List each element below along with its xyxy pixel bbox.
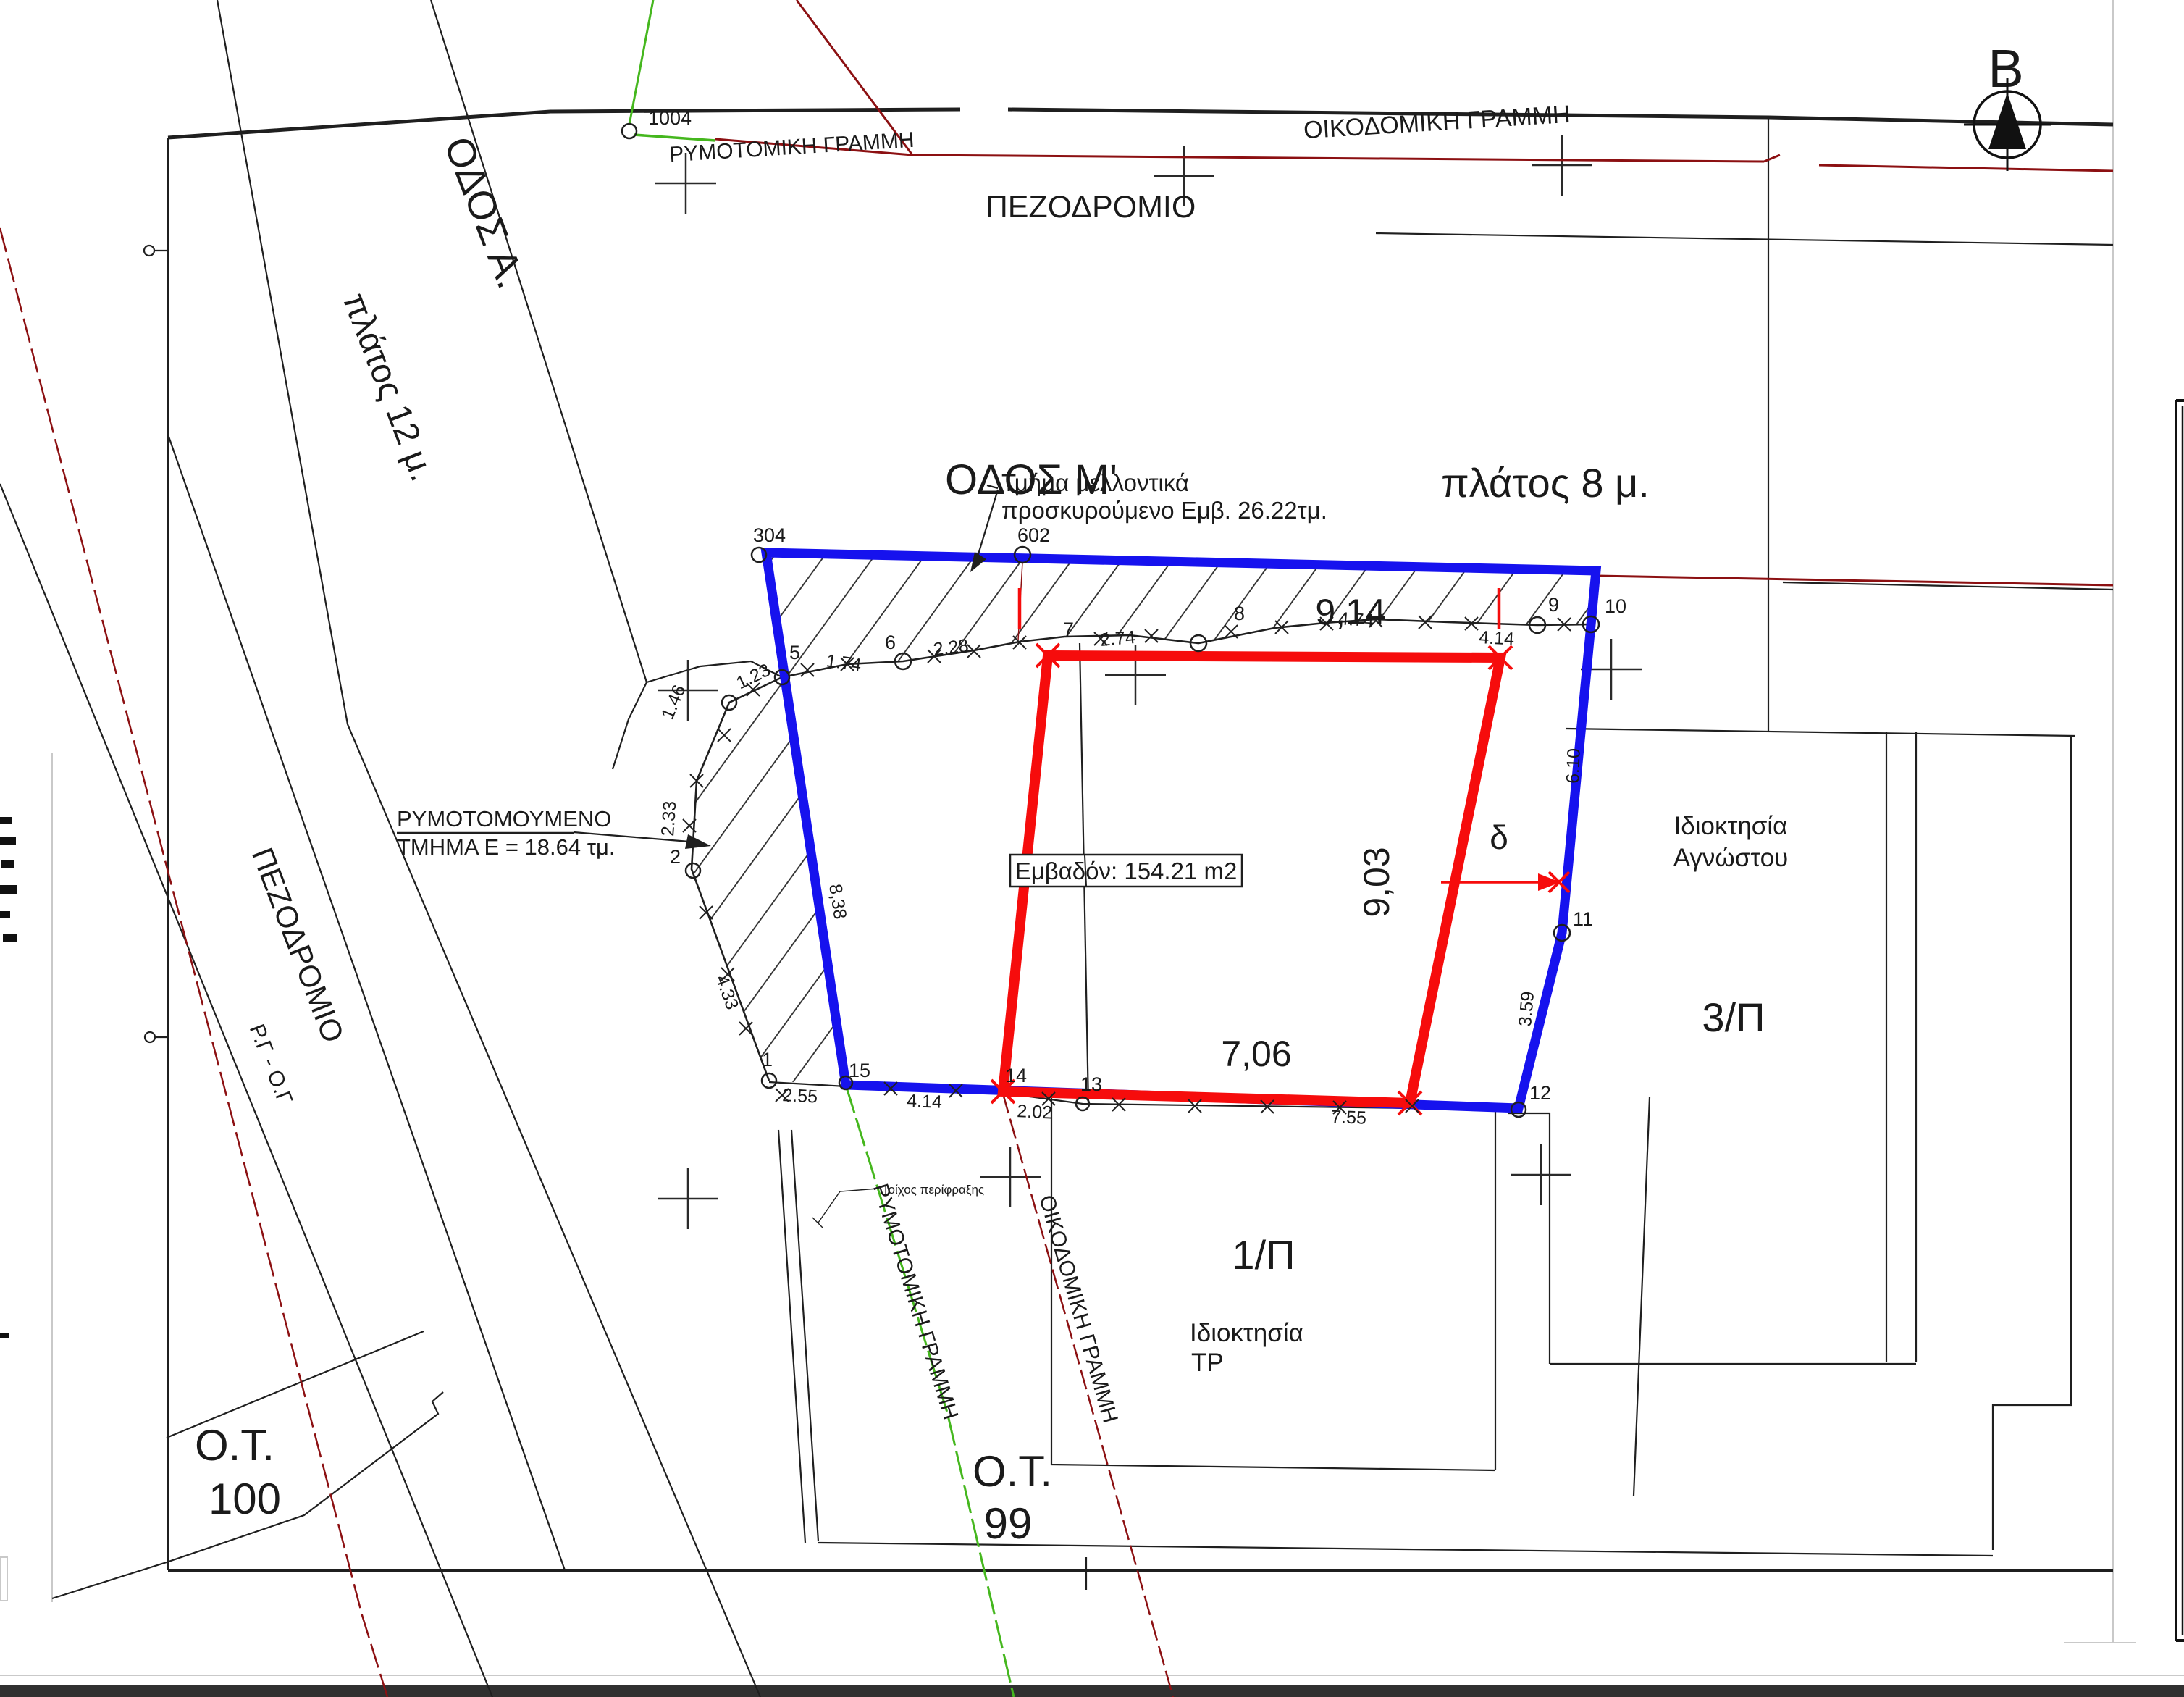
delta-dim-arrow	[1538, 873, 1561, 891]
rymotomiki-line-top-vertical	[629, 0, 653, 125]
owner-1p-line1: Ιδιοκτησία	[1190, 1319, 1303, 1347]
owner-3p-line1: Ιδιοκτησία	[1674, 812, 1788, 840]
pt-10: 10	[1605, 595, 1626, 617]
pt-602: 602	[1017, 524, 1050, 546]
meas-174: 1.74	[825, 650, 862, 676]
topographic-plan-page: { "labels": { "north": "Β", "odos_m": "Ο…	[0, 0, 2184, 1697]
pt-2: 2	[670, 846, 681, 868]
meas-474: 4.74	[1338, 608, 1375, 631]
street-a-label: ΟΔΟΣ Α.	[436, 130, 534, 294]
rymot-note-2: ΤΜΗΜΑ Ε = 18.64 τμ.	[397, 834, 615, 860]
pt-14: 14	[1005, 1065, 1027, 1086]
pt-8: 8	[1234, 603, 1245, 624]
adjacent-sheet-edge	[2176, 400, 2184, 1641]
owner-3p-line2: Αγνώστου	[1673, 844, 1789, 872]
street-m-width: πλάτος 8 μ.	[1441, 460, 1650, 506]
ot100-label-2: 100	[209, 1475, 281, 1523]
street-labels: ΟΔΟΣ Μ' πλάτος 8 μ. ΠΕΖΟΔΡΟΜΙΟ ΟΔΟΣ Α. π…	[245, 101, 1650, 1426]
meas-146: 1.46	[658, 682, 690, 723]
sidewalk-top-label: ΠΕΖΟΔΡΟΜΙΟ	[986, 190, 1196, 225]
pt-6: 6	[885, 632, 896, 653]
pt-1004: 1004	[648, 107, 692, 129]
pt-304: 304	[753, 524, 786, 546]
north-label: Β	[1988, 38, 2023, 99]
rymot-note-1: ΡΥΜΟΤΟΜΟΥΜΕΝΟ	[397, 806, 611, 831]
parcel-3p-label: 3/Π	[1702, 994, 1765, 1040]
dim-706: 7,06	[1221, 1034, 1291, 1074]
rymotomiki-bottom-label: ΡΥΜΟΤΟΜΙΚΗ ΓΡΑΜΜΗ	[868, 1181, 963, 1422]
meas-274: 2.74	[1099, 627, 1136, 650]
meas-755: 7.55	[1331, 1107, 1367, 1128]
ot100-label-1: Ο.Τ.	[195, 1421, 274, 1470]
meas-233: 2.33	[658, 800, 680, 837]
pt-5: 5	[789, 642, 800, 663]
ot99-label-1: Ο.Τ.	[973, 1447, 1052, 1496]
meas-202: 2.02	[1017, 1101, 1053, 1123]
meas-610: 6.10	[1563, 748, 1584, 784]
left-edge-marks	[0, 817, 17, 1338]
dim-delta: δ	[1490, 818, 1508, 856]
east-block-outline	[1993, 736, 2071, 1550]
regulation-lines	[0, 0, 2113, 1697]
parcel-division-12	[1508, 1113, 1916, 1364]
page-artifacts	[0, 0, 2184, 1697]
rymotomiki-top-label: ΡΥΜΟΤΟΜΙΚΗ ΓΡΑΜΜΗ	[668, 128, 915, 167]
pt-13: 13	[1080, 1073, 1102, 1095]
annex-note-1: Τμήμα μελλοντικά	[1001, 469, 1189, 496]
oikodomiki-bottom-label: ΟΙΚΟΔΟΜΙΚΗ ΓΡΑΜΜΗ	[1034, 1192, 1122, 1425]
meas-255: 2.55	[782, 1085, 818, 1107]
oikodomiki-line-bottom	[1003, 1094, 1173, 1697]
pt-15: 15	[849, 1060, 870, 1081]
parcel-division-1p-3p	[1634, 1097, 1650, 1496]
pt-9: 9	[1548, 594, 1559, 616]
parcel-top-boundary-right	[1566, 729, 2075, 736]
meas-228: 2.28	[932, 635, 970, 660]
street-a-east-line	[431, 0, 647, 682]
meas-414b: 4.14	[907, 1091, 943, 1113]
hatched-areas	[692, 553, 1596, 1085]
area-value: Εμβαδόν: 154.21 m2	[1015, 858, 1238, 884]
north-arrow: Β	[1964, 38, 2051, 171]
wall-note: Τοίχος περίφραξης	[882, 1183, 984, 1197]
owner-1p-line2: ΤΡ	[1191, 1349, 1224, 1377]
area-box: Εμβαδόν: 154.21 m2	[1010, 855, 1242, 887]
dim-903: 9,03	[1356, 847, 1397, 917]
fence-wall	[778, 1130, 818, 1543]
parcel-1p-label: 1/Π	[1232, 1232, 1295, 1278]
meas-359: 3.59	[1515, 991, 1538, 1028]
street-a-width: πλάτος 12 μ.	[335, 288, 442, 486]
pt-12: 12	[1529, 1082, 1551, 1104]
bottom-scan-band	[0, 1685, 2184, 1697]
wall-leader	[812, 1189, 878, 1228]
ot99-label-2: 99	[984, 1499, 1033, 1548]
sidewalk-edge-right	[1376, 233, 2113, 245]
oikodomiki-line-top	[715, 139, 2113, 171]
pt-11: 11	[1573, 908, 1593, 930]
rg-og-label: Ρ.Γ - Ο.Γ	[245, 1021, 297, 1108]
annex-note-2: προσκυρούμενο Εμβ. 26.22τμ.	[1001, 497, 1327, 524]
meas-838: 8,38	[825, 883, 850, 921]
sidewalk-left-line	[168, 435, 565, 1570]
rymotomiki-line-top	[634, 135, 715, 141]
pt-1: 1	[762, 1049, 773, 1070]
pt-7: 7	[1063, 619, 1074, 640]
survey-drawing: Εμβαδόν: 154.21 m2 Β	[0, 0, 2184, 1697]
oikodomiki-top-label: ΟΙΚΟΔΟΜΙΚΗ ΓΡΑΜΜΗ	[1303, 101, 1571, 144]
meas-414: 4.14	[1479, 627, 1515, 650]
sidewalk-left-label: ΠΕΖΟΔΡΟΜΙΟ	[245, 843, 351, 1047]
